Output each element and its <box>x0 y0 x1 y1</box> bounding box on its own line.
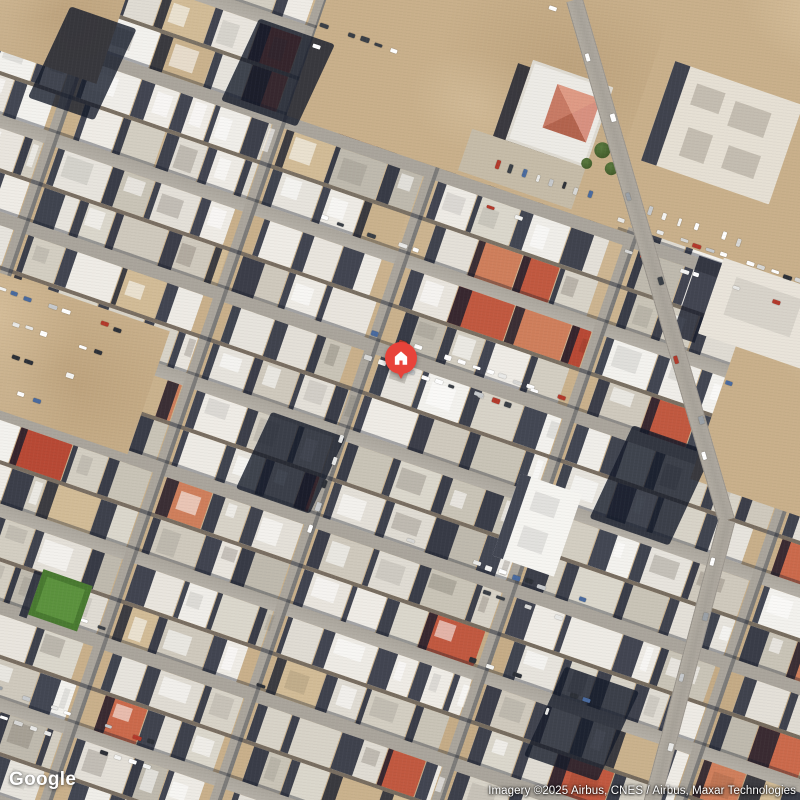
roof-detail <box>58 688 70 709</box>
roof-detail <box>303 379 328 405</box>
map-canvas[interactable]: Google Imagery ©2025 Airbus, CNES / Airb… <box>0 0 800 800</box>
roof-detail <box>192 736 215 758</box>
roof-detail <box>766 595 793 619</box>
roof-detail <box>428 673 442 693</box>
roof-detail <box>393 661 407 682</box>
roof-detail <box>204 398 229 419</box>
roof-detail <box>452 335 476 360</box>
roof-detail <box>427 573 457 596</box>
roof-detail <box>337 157 369 187</box>
roof-detail <box>768 638 784 655</box>
roof-detail <box>158 676 192 704</box>
roof-detail <box>139 767 160 794</box>
roof-detail <box>517 525 549 554</box>
roof-detail <box>60 155 94 186</box>
roof-detail <box>450 490 467 509</box>
building-shadow <box>222 792 240 800</box>
roof-detail <box>280 177 302 201</box>
car <box>657 277 664 286</box>
roof-detail <box>221 646 238 672</box>
roof-detail <box>175 491 201 516</box>
google-logo[interactable]: Google <box>9 769 76 791</box>
roof-detail <box>207 207 227 230</box>
roof-detail <box>151 91 174 117</box>
roof-detail <box>209 693 235 720</box>
roof-detail <box>283 669 309 694</box>
roof-detail <box>333 638 366 663</box>
roof-detail <box>361 747 381 767</box>
roof-detail <box>420 280 445 307</box>
roof-detail <box>0 663 13 683</box>
roof-detail <box>375 559 406 587</box>
roof-detail <box>169 781 189 800</box>
courtyard <box>679 127 713 164</box>
roof-detail <box>155 528 181 557</box>
roof-detail <box>188 102 207 128</box>
park-field <box>36 577 86 624</box>
roof-detail <box>560 276 579 298</box>
car <box>584 53 591 62</box>
car <box>610 113 617 122</box>
roof-detail <box>390 512 421 537</box>
roof-detail <box>609 387 634 407</box>
roof-detail <box>168 2 191 27</box>
courtyard <box>727 101 771 138</box>
roof-detail <box>311 577 340 603</box>
building-shadow <box>101 653 122 692</box>
roof-detail <box>327 197 349 220</box>
roof-detail <box>169 43 200 73</box>
roof-detail <box>491 738 508 755</box>
roof-detail <box>369 696 399 723</box>
roof-detail <box>224 503 237 519</box>
car <box>702 612 708 621</box>
roof-detail <box>442 192 466 215</box>
roof-detail <box>610 345 642 375</box>
building-shadow <box>399 270 424 310</box>
building-shadow <box>0 170 5 209</box>
roof-detail <box>256 517 283 546</box>
car <box>701 451 708 460</box>
roof-detail <box>613 541 626 558</box>
map-attribution: Imagery ©2025 Airbus, CNES / Airbus, Max… <box>488 785 796 797</box>
roof-detail <box>0 127 1 149</box>
roof-detail <box>415 321 438 341</box>
roof-detail <box>262 365 282 389</box>
roof-detail <box>397 173 414 191</box>
roof-detail <box>395 467 426 496</box>
roof-detail <box>32 246 50 264</box>
roof-detail <box>477 596 489 613</box>
car <box>678 673 684 682</box>
roof-detail <box>127 616 147 642</box>
car <box>625 192 632 201</box>
home-icon <box>392 349 410 367</box>
roof-detail <box>162 629 192 656</box>
roof-detail <box>221 546 238 563</box>
roof-detail <box>335 685 357 710</box>
roof-detail <box>124 280 145 300</box>
courtyard <box>721 145 761 179</box>
roof-detail <box>325 540 351 568</box>
roof-detail <box>529 224 550 250</box>
roof-detail <box>214 116 233 141</box>
car <box>698 416 705 425</box>
roof-detail <box>632 304 653 329</box>
building-shadow <box>732 676 757 716</box>
roof-detail <box>639 646 654 671</box>
roof-detail <box>529 491 560 518</box>
roof-detail <box>40 634 65 658</box>
roof-detail <box>84 207 106 230</box>
roof-detail <box>0 563 5 579</box>
roof-detail <box>478 207 500 229</box>
courtyard <box>690 84 726 115</box>
roof-detail <box>219 353 243 373</box>
roof-detail <box>324 344 341 367</box>
car <box>667 743 673 752</box>
roof-detail <box>176 242 197 267</box>
roof-detail <box>0 75 6 94</box>
car <box>412 247 420 252</box>
roof-detail <box>156 193 184 219</box>
roof-detail <box>336 494 367 522</box>
building-shadow <box>253 219 271 256</box>
roof-detail <box>213 158 231 182</box>
roof-detail <box>186 591 204 610</box>
car <box>709 557 715 566</box>
roof-detail <box>649 555 680 581</box>
roof-detail <box>498 696 526 724</box>
marker-dot <box>385 342 417 374</box>
roof-detail <box>173 145 198 173</box>
roof-detail <box>112 703 132 721</box>
roof-detail <box>38 539 74 572</box>
roof-detail <box>5 525 29 545</box>
building-shadow <box>220 305 240 343</box>
roof-detail <box>523 651 548 671</box>
roof-detail <box>123 177 146 197</box>
roof-detail <box>216 19 241 48</box>
car <box>673 355 680 364</box>
roof-detail <box>288 137 316 166</box>
roof-detail <box>75 454 93 476</box>
roof-detail <box>532 459 544 479</box>
roof-detail <box>434 620 456 642</box>
roof-detail <box>290 283 314 307</box>
